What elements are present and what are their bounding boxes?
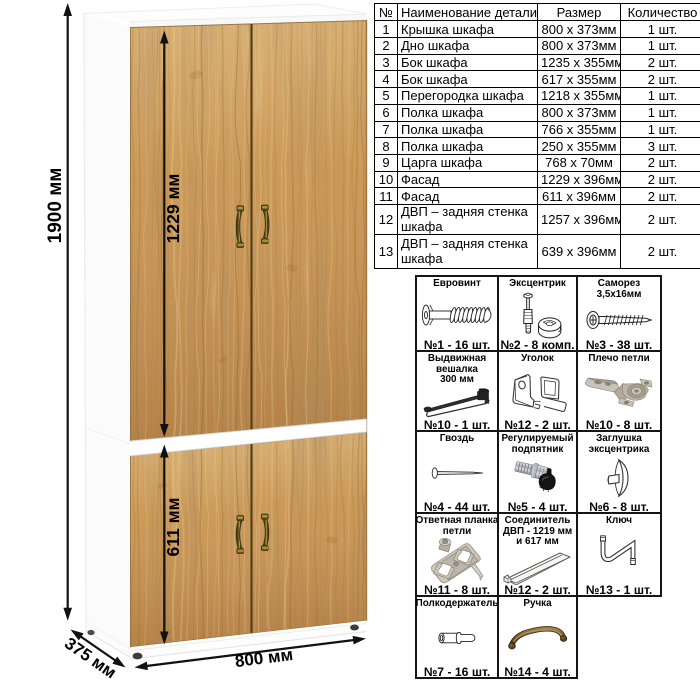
svg-text:611 мм: 611 мм (163, 498, 183, 557)
svg-text:1900 мм: 1900 мм (45, 168, 66, 244)
svg-text:800 мм: 800 мм (234, 645, 294, 671)
svg-text:1229 мм: 1229 мм (163, 174, 183, 244)
